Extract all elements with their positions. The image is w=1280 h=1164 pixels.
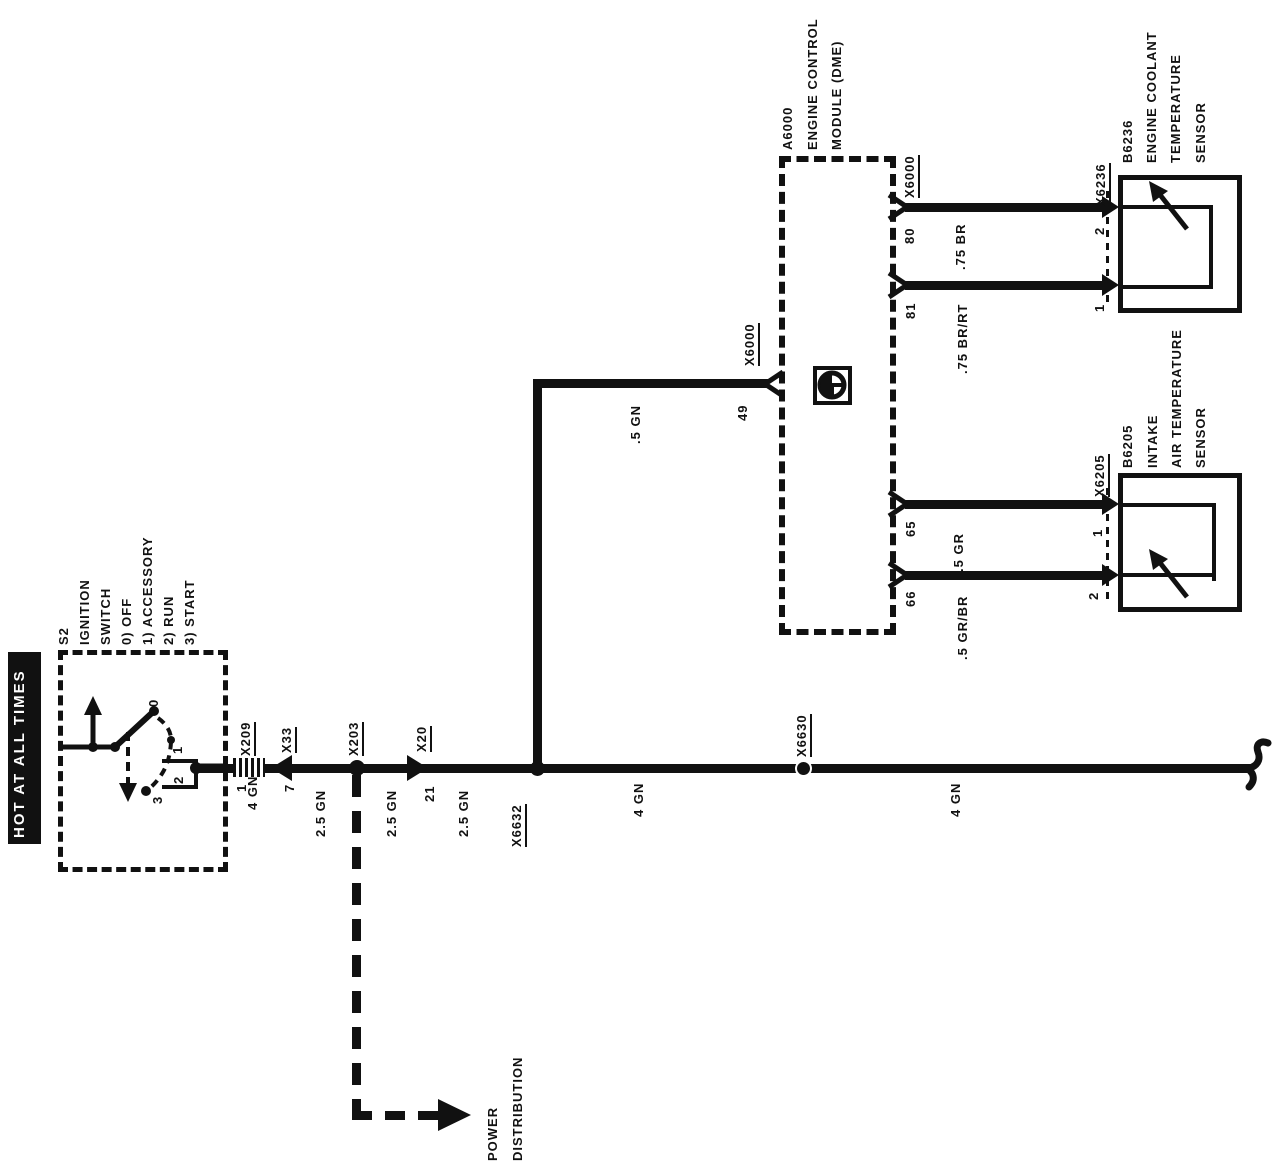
rotation-arrow-icon [119,783,137,802]
connector-label-x6632: X6632 [510,804,527,847]
intake-inner-top [1123,503,1216,507]
riser-wire [533,383,542,773]
power-distribution-wire [352,775,361,1113]
wire-label-4gn-c: 4 GN [949,783,963,817]
wire-label-4gn-b: 4 GN [632,783,646,817]
connector-x33-arrow-icon [271,755,292,781]
wire-pin65 [905,500,1105,509]
dme-name2: MODULE (DME) [830,41,844,151]
pin49-terminal-icon [762,369,786,399]
connector-x6236-line [1106,191,1109,307]
pin49-wire [533,379,769,388]
dme-name1: ENGINE CONTROL [806,18,820,150]
power-distribution-label-1: POWER [486,1107,500,1161]
coolant-sensor-name3: SENSOR [1194,102,1208,163]
wiring-diagram-page: HOT AT ALL TIMES S2 IGNITION SWITCH 0) O… [0,0,1280,1164]
pin-label-21: 21 [423,786,437,802]
connector-label-x6630: X6630 [795,714,812,757]
coolant-pin-1: 1 [1093,304,1107,312]
contact-0-label: 0 [147,699,161,707]
switch-pos-run: 2) RUN [162,596,176,645]
connector-label-x203: X203 [347,722,364,756]
connector-label-x6000-pin49: X6000 [743,323,760,366]
dme-module-icon [813,366,853,406]
wire-pin81-arrow-icon [1102,274,1119,296]
power-distribution-arrow-icon [438,1099,471,1131]
wire-label-4gn-a: 4 GN [246,776,260,810]
pin-label-81: 81 [904,303,918,319]
connector-x20-arrow-icon [407,755,428,781]
contact-3-label: 3 [151,796,165,804]
wire-pin66-arrow-icon [1102,564,1119,586]
intake-thermistor-icon [1143,549,1193,605]
supply-arrow-icon [84,696,102,715]
connector-x6630-dot [795,760,812,777]
coolant-inner-bottom [1123,285,1213,289]
coolant-sensor-name1: ENGINE COOLANT [1145,31,1159,163]
wire-label-5grbr: .5 GR/BR [956,596,970,660]
hot-at-all-times-label: HOT AT ALL TIMES [13,669,27,838]
wire-pin80 [905,203,1105,212]
wire-continuation-icon [1242,738,1274,796]
connector-label-x6205: X6205 [1093,454,1110,497]
contact-1-label: 1 [171,746,185,754]
coolant-sensor-id: B6236 [1121,120,1135,163]
coolant-pin-2: 2 [1093,227,1107,235]
switch-pos-start: 3) START [183,579,197,645]
intake-sensor-name3: SENSOR [1194,407,1208,468]
ignition-switch-name1: IGNITION [78,579,92,645]
pin-label-66: 66 [904,591,918,607]
dme-id: A6000 [781,107,795,150]
connector-label-x20: X20 [415,726,432,752]
intake-pin-2: 2 [1087,592,1101,600]
wire-label-25gn-a: 2.5 GN [314,790,328,837]
pin-label-80: 80 [903,228,917,244]
ignition-switch-id: S2 [57,627,71,645]
wire-pin66 [905,571,1105,580]
wire-label-75brrt: .75 BR/RT [956,304,970,374]
pin-label-7: 7 [283,784,297,792]
switch-pos-off: 0) OFF [120,598,134,645]
connector-label-x33: X33 [280,727,297,753]
coolant-inner-right [1209,205,1213,289]
pin-label-65: 65 [904,521,918,537]
intake-sensor-id: B6205 [1121,425,1135,468]
power-distribution-label-2: DISTRIBUTION [511,1057,525,1161]
intake-sensor-name2: AIR TEMPERATURE [1170,329,1184,468]
power-distribution-wire-h [352,1111,440,1120]
wire-label-75br: .75 BR [954,224,968,270]
connector-x6205-line [1106,488,1109,604]
connector-x209-splice [233,758,265,777]
intake-inner-right [1212,503,1216,581]
wire-label-25gn-c: 2.5 GN [457,790,471,837]
wire-label-05gn: .5 GN [629,405,643,444]
connector-label-x209: X209 [239,722,256,756]
coolant-sensor-name2: TEMPERATURE [1169,54,1183,163]
contact-2-label: 2 [172,776,186,784]
ignition-switch-symbol [58,650,228,872]
pin-label-49: 49 [736,405,750,421]
intake-sensor-name1: INTAKE [1146,415,1160,468]
coolant-thermistor-icon [1143,181,1193,237]
switch-pos-accessory: 1) ACCESSORY [141,536,155,645]
intake-pin-1: 1 [1091,529,1105,537]
junction-x203-dot [349,760,365,776]
wire-label-25gn-b: 2.5 GN [385,790,399,837]
ignition-switch-name2: SWITCH [99,588,113,645]
wire-label-5gr: .5 GR [952,533,966,572]
connector-label-x6236: X6236 [1094,163,1111,206]
wire-pin81 [905,281,1105,290]
